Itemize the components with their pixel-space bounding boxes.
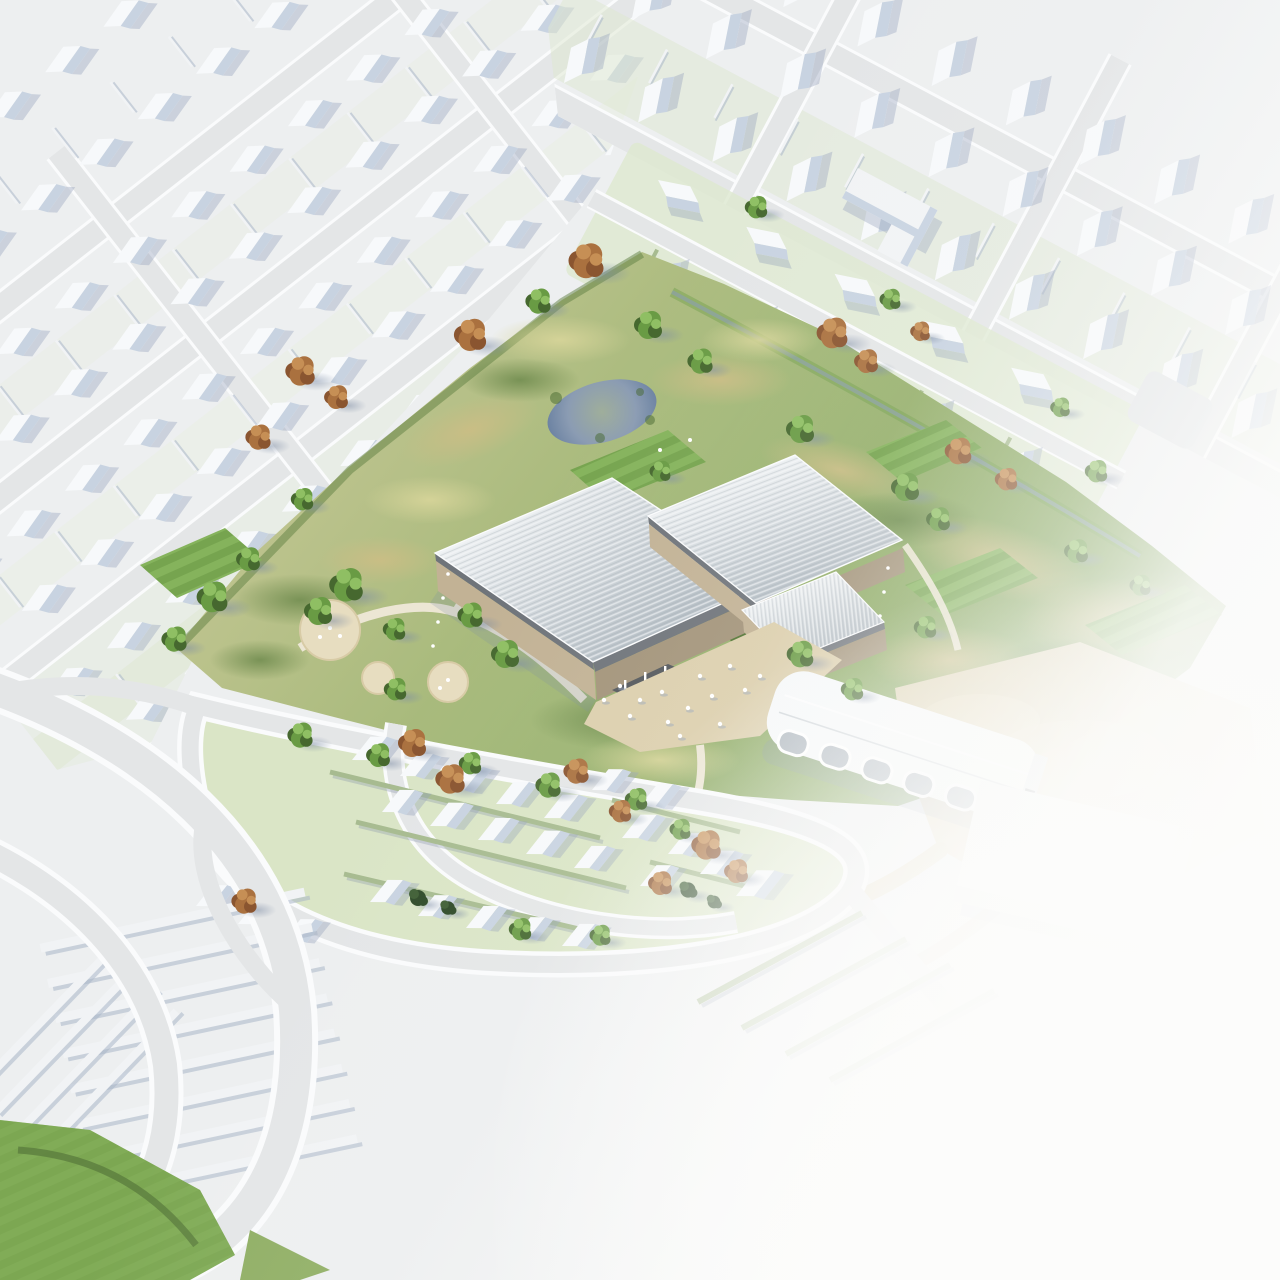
fog-corner [0,0,1280,1280]
site-rendering [0,0,1280,1280]
